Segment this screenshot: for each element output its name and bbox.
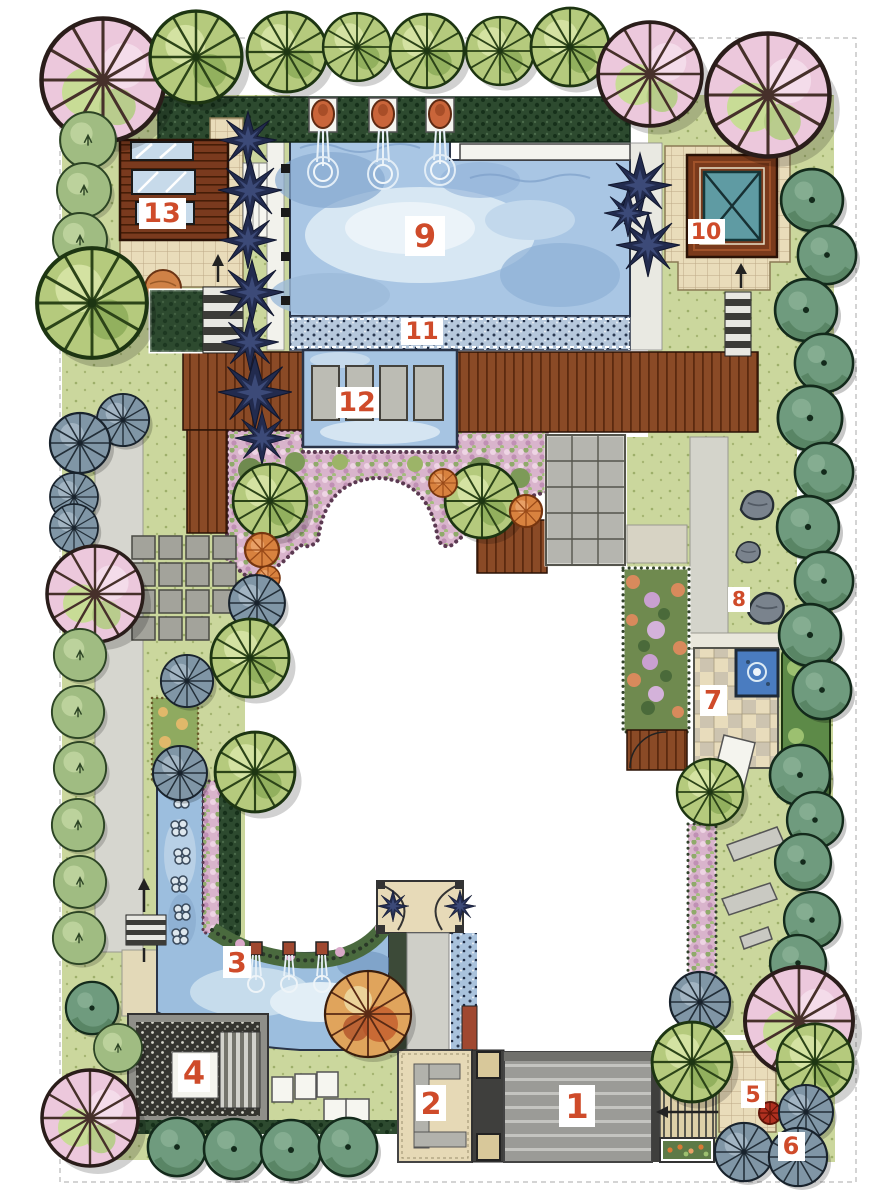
plan-label-2: 2 — [416, 1085, 446, 1122]
svg-text:10: 10 — [691, 220, 722, 245]
landscape-plan-page: 1 2 3 4 5 6 7 8 9 10 11 12 13 — [0, 0, 886, 1200]
plan-label-3: 3 — [223, 946, 251, 979]
plan-label-13: 13 — [139, 198, 186, 229]
svg-text:8: 8 — [732, 587, 746, 611]
plan-label-1: 1 — [559, 1085, 595, 1127]
plan-label-12: 12 — [336, 387, 379, 418]
stepping-slab — [414, 366, 443, 420]
small-fountain-pool — [736, 650, 778, 696]
pavilion-steps — [725, 292, 751, 356]
svg-text:4: 4 — [183, 1054, 205, 1092]
grid-paving-court — [546, 435, 625, 565]
svg-text:12: 12 — [338, 387, 376, 418]
landscape-plan-drawing: 1 2 3 4 5 6 7 8 9 10 11 12 13 — [0, 0, 886, 1200]
svg-text:11: 11 — [405, 317, 438, 345]
stepping-slab — [312, 366, 339, 420]
plan-label-8: 8 — [728, 587, 750, 612]
svg-text:1: 1 — [565, 1087, 589, 1127]
svg-text:2: 2 — [421, 1087, 442, 1122]
plan-label-7: 7 — [700, 685, 727, 716]
garden-wall — [462, 1006, 477, 1052]
plan-label-9: 9 — [405, 216, 445, 256]
gate-post — [477, 1052, 500, 1078]
plan-label-5: 5 — [741, 1081, 765, 1108]
path-elbow — [690, 633, 793, 649]
stepping-slab — [380, 366, 407, 420]
plan-label-4: 4 — [178, 1054, 210, 1092]
east-path — [690, 437, 728, 649]
waterfall-edge — [290, 316, 630, 350]
plan-label-11: 11 — [401, 317, 443, 345]
flower-strip — [688, 824, 716, 982]
flower-box — [660, 1138, 714, 1162]
stepping-stone-channel — [303, 350, 457, 447]
plan-label-6: 6 — [778, 1132, 805, 1161]
svg-text:3: 3 — [227, 946, 246, 979]
svg-text:6: 6 — [783, 1132, 800, 1160]
svg-text:7: 7 — [704, 686, 722, 716]
east-deck-strip — [627, 730, 687, 770]
svg-text:5: 5 — [745, 1083, 760, 1108]
pool-ledge — [460, 144, 630, 160]
deck-east — [455, 352, 758, 432]
svg-text:9: 9 — [414, 217, 436, 255]
plan-label-10: 10 — [688, 219, 725, 245]
patio-deck — [220, 1032, 260, 1108]
east-cross-path — [627, 525, 687, 563]
svg-text:13: 13 — [143, 198, 181, 229]
deck-west-arm — [187, 430, 227, 533]
shrub-icon — [510, 495, 542, 527]
gate-post — [477, 1134, 500, 1160]
pool-west-wall — [267, 125, 284, 350]
shrub-icon — [245, 533, 279, 567]
waterside-hedge — [219, 790, 241, 940]
shrub-icon — [429, 469, 457, 497]
